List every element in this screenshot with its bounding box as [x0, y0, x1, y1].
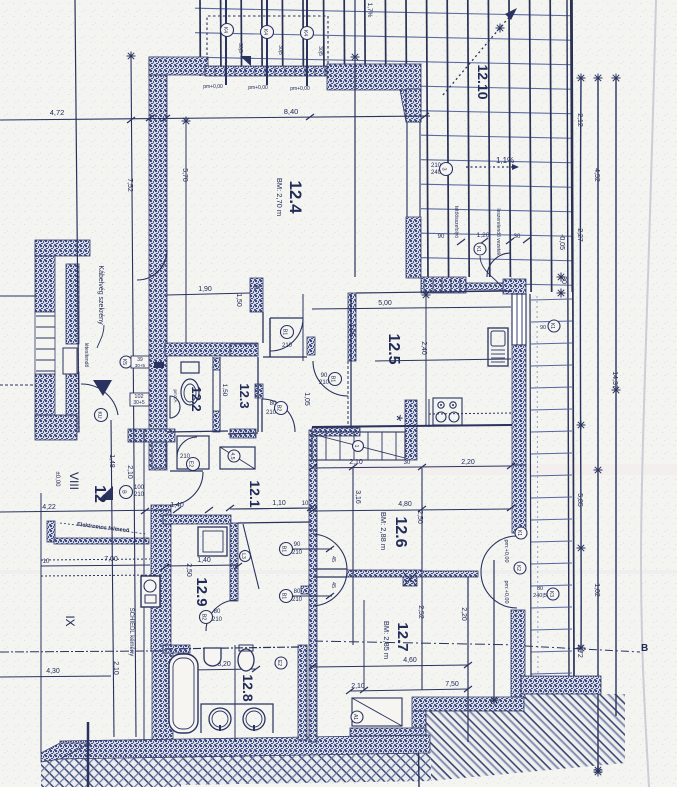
- svg-text:leszerelendő vezeték: leszerelendő vezeték: [495, 209, 501, 256]
- svg-text:210: 210: [431, 163, 442, 169]
- svg-text:80: 80: [294, 589, 301, 595]
- svg-text:1,10: 1,10: [272, 500, 286, 507]
- svg-text:30|5: 30|5: [237, 43, 243, 53]
- svg-text:12.3: 12.3: [237, 383, 252, 408]
- svg-text:210: 210: [292, 597, 303, 603]
- svg-text:±0,00: ±0,00: [54, 472, 60, 488]
- svg-text:pm+0,00: pm+0,00: [290, 86, 310, 92]
- svg-text:210: 210: [134, 492, 145, 498]
- svg-text:80: 80: [537, 586, 543, 592]
- svg-text:12.6: 12.6: [392, 516, 409, 547]
- svg-text:K2: K2: [515, 565, 521, 571]
- svg-text:100: 100: [134, 485, 145, 491]
- svg-text:5,00: 5,00: [378, 300, 392, 307]
- svg-text:1,20: 1,20: [477, 232, 490, 239]
- svg-text:pm:+0,00: pm:+0,00: [503, 580, 509, 603]
- svg-text:-0,05: -0,05: [558, 234, 565, 250]
- svg-text:2,52: 2,52: [417, 605, 424, 619]
- svg-text:2,72: 2,72: [576, 644, 583, 658]
- svg-text:12.10: 12.10: [475, 64, 491, 99]
- svg-text:Kábelvég szekrény: Kábelvég szekrény: [97, 265, 104, 325]
- svg-text:A1: A1: [352, 714, 358, 720]
- svg-text:B: B: [641, 643, 648, 654]
- svg-text:210: 210: [282, 343, 293, 349]
- svg-text:4,22: 4,22: [42, 504, 56, 511]
- svg-text:240: 240: [431, 170, 442, 176]
- svg-text:90: 90: [438, 234, 445, 240]
- svg-text:4,60: 4,60: [403, 657, 417, 664]
- svg-text:80: 80: [214, 609, 221, 615]
- svg-text:tetőösszefolyó: tetőösszefolyó: [453, 206, 459, 238]
- svg-text:2,10: 2,10: [126, 465, 133, 479]
- svg-text:2,20: 2,20: [460, 607, 467, 621]
- svg-text:K1: K1: [549, 323, 555, 329]
- svg-text:K5: K5: [121, 359, 127, 365]
- svg-text:90: 90: [321, 373, 328, 379]
- svg-text:80: 80: [270, 401, 277, 407]
- svg-text:BM: 2,70 m: BM: 2,70 m: [275, 178, 284, 216]
- svg-text:1,50: 1,50: [235, 293, 242, 307]
- svg-text:12.2: 12.2: [189, 386, 204, 411]
- svg-text:5,70: 5,70: [181, 168, 188, 182]
- svg-text:7,50: 7,50: [445, 681, 459, 688]
- svg-text:4,52: 4,52: [593, 168, 600, 182]
- svg-text:létesítendő: létesítendő: [83, 343, 89, 368]
- svg-text:BM: 2,88 m: BM: 2,88 m: [379, 512, 388, 550]
- svg-text:5,85: 5,85: [576, 493, 583, 507]
- svg-text:210: 210: [180, 454, 191, 460]
- svg-text:K4: K4: [302, 30, 308, 36]
- svg-text:2,50: 2,50: [185, 563, 192, 577]
- svg-text:B2: B2: [201, 614, 207, 621]
- svg-text:2,20: 2,20: [461, 459, 475, 466]
- svg-text:2,50: 2,50: [416, 510, 423, 524]
- svg-text:30+5: 30+5: [133, 400, 144, 406]
- svg-text:E2: E2: [276, 660, 282, 666]
- svg-text:B1: B1: [281, 593, 287, 600]
- svg-text:90: 90: [254, 285, 261, 291]
- svg-text:10: 10: [43, 559, 50, 565]
- svg-text:1,1%: 1,1%: [496, 156, 514, 165]
- svg-text:VIII: VIII: [67, 472, 81, 490]
- svg-text:3,16: 3,16: [354, 490, 361, 504]
- svg-text:12.4: 12.4: [286, 180, 305, 214]
- svg-text:12.7: 12.7: [394, 622, 411, 651]
- svg-text:30+5: 30+5: [135, 363, 146, 368]
- svg-text:BM: 2,85 m: BM: 2,85 m: [382, 621, 391, 659]
- svg-text:1,40: 1,40: [197, 557, 211, 564]
- svg-text:pm1,A: pm1,A: [173, 389, 178, 402]
- svg-text:K4: K4: [262, 29, 268, 35]
- svg-text:7,00: 7,00: [104, 556, 118, 563]
- svg-text:B1: B1: [282, 329, 288, 336]
- svg-text:3: 3: [441, 167, 447, 170]
- svg-text:*: *: [387, 415, 406, 422]
- svg-text:90: 90: [540, 325, 546, 331]
- svg-text:4,80: 4,80: [398, 501, 412, 508]
- svg-text:45: 45: [330, 556, 336, 562]
- svg-text:1,90: 1,90: [198, 286, 212, 293]
- svg-text:45: 45: [330, 582, 336, 588]
- svg-text:10: 10: [302, 501, 309, 507]
- svg-text:B2: B2: [276, 405, 282, 412]
- svg-text:K3: K3: [548, 591, 554, 597]
- svg-text:2,10: 2,10: [349, 459, 363, 466]
- svg-text:2,27: 2,27: [576, 228, 583, 242]
- svg-text:2,10: 2,10: [351, 683, 365, 690]
- svg-text:14,37: 14,37: [611, 371, 618, 389]
- svg-text:2,40: 2,40: [420, 341, 427, 355]
- svg-text:240|5: 240|5: [533, 593, 547, 599]
- svg-text:KU: KU: [96, 412, 102, 419]
- svg-text:8,40: 8,40: [284, 107, 299, 116]
- svg-text:12.8: 12.8: [240, 674, 256, 701]
- svg-text:1,05: 1,05: [348, 324, 355, 337]
- svg-text:90: 90: [294, 542, 301, 548]
- svg-text:L3: L3: [240, 553, 246, 559]
- svg-text:B: B: [121, 490, 127, 494]
- svg-text:1,50: 1,50: [221, 384, 228, 397]
- svg-text:30: 30: [514, 234, 521, 240]
- svg-text:7,52: 7,52: [126, 178, 133, 192]
- svg-text:210: 210: [292, 550, 303, 556]
- svg-text:4,72: 4,72: [50, 108, 65, 117]
- svg-text:2,10: 2,10: [112, 661, 119, 675]
- svg-text:pm+0,00: pm+0,00: [203, 84, 223, 90]
- svg-text:K1: K1: [516, 530, 522, 536]
- svg-text:K1: K1: [475, 246, 481, 252]
- svg-text:1,48: 1,48: [108, 454, 115, 468]
- svg-text:30: 30: [404, 460, 411, 466]
- svg-text:210: 210: [319, 380, 330, 386]
- svg-text:1: 1: [353, 445, 359, 448]
- svg-text:K4: K4: [222, 27, 228, 33]
- svg-text:B1: B1: [330, 376, 336, 383]
- svg-text:210: 210: [212, 617, 223, 623]
- svg-text:pm+0,00: pm+0,00: [248, 85, 268, 91]
- svg-text:pm:+0,00: pm:+0,00: [503, 539, 509, 562]
- svg-text:B1: B1: [281, 546, 287, 553]
- svg-text:12.1: 12.1: [247, 480, 263, 507]
- svg-text:SCHIEDL kémény: SCHIEDL kémény: [128, 608, 134, 656]
- svg-text:E2: E2: [188, 461, 194, 468]
- svg-text:12.5: 12.5: [385, 333, 402, 364]
- svg-text:1,02: 1,02: [593, 583, 600, 597]
- svg-text:30|5: 30|5: [277, 45, 283, 55]
- svg-text:1,7%: 1,7%: [366, 3, 373, 18]
- svg-text:4,5: 4,5: [229, 453, 235, 460]
- svg-text:1,05: 1,05: [303, 392, 310, 406]
- svg-text:2,12: 2,12: [576, 113, 583, 127]
- svg-text:IX: IX: [63, 615, 77, 626]
- svg-text:30|5: 30|5: [317, 46, 323, 56]
- svg-text:12.9: 12.9: [193, 577, 210, 606]
- svg-text:12: 12: [91, 485, 108, 503]
- svg-text:4,30: 4,30: [46, 668, 60, 675]
- svg-text:210: 210: [266, 410, 277, 416]
